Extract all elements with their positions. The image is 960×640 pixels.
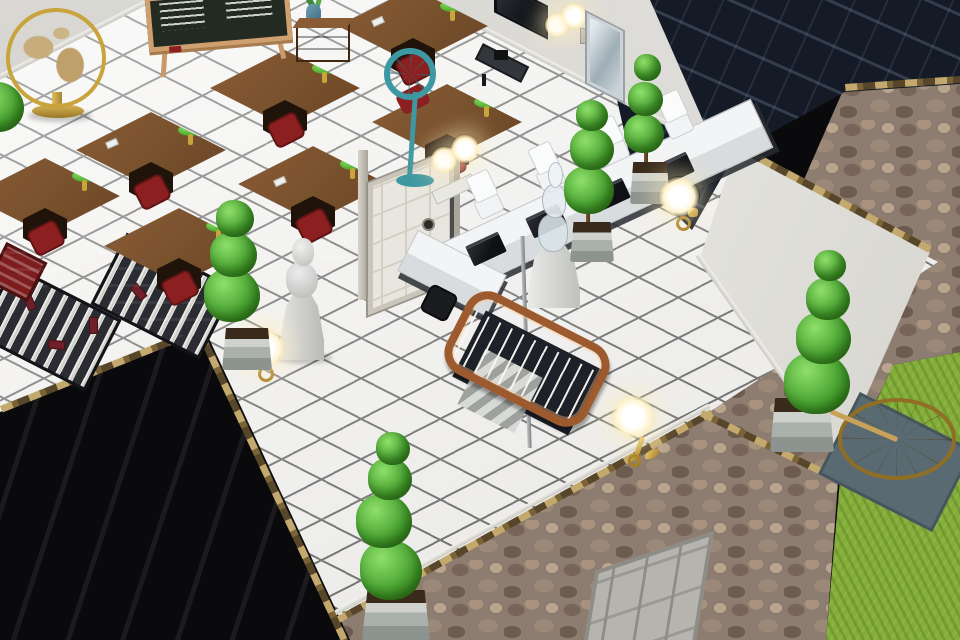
topiary-ball <box>634 54 661 81</box>
topiary-ball <box>624 114 664 153</box>
topiary-ball <box>564 166 614 214</box>
topiary-pot <box>222 328 272 370</box>
topiary-ball <box>570 128 614 170</box>
statue-body <box>286 262 318 298</box>
desk-chair[interactable] <box>159 268 200 307</box>
lamp-pole <box>450 192 454 240</box>
lamp-leaf <box>643 447 661 462</box>
paper <box>273 176 287 187</box>
book <box>89 317 98 334</box>
lamp-glow <box>610 394 656 440</box>
desk-chair[interactable] <box>25 218 66 257</box>
desk-chair[interactable] <box>131 172 172 211</box>
candle-glow <box>560 2 588 30</box>
fan-base <box>396 174 434 187</box>
bench-object <box>494 50 508 60</box>
fan-cage <box>384 48 436 100</box>
topiary-ball <box>806 278 850 320</box>
topiary-tree[interactable] <box>196 192 286 372</box>
side-cabinet[interactable] <box>296 8 356 64</box>
topiary-ball <box>814 250 846 281</box>
topiary-ball <box>376 432 410 465</box>
bench-leg <box>482 74 486 86</box>
chalkboard-easel[interactable] <box>145 0 302 82</box>
paper <box>105 138 119 149</box>
paper <box>371 16 385 27</box>
topiary-ball <box>356 494 412 548</box>
topiary-ball <box>576 100 608 131</box>
chalk-text-left <box>159 0 205 31</box>
candle-glow <box>450 134 480 164</box>
book <box>48 339 66 350</box>
lamp-base <box>628 454 641 467</box>
wall-globe-lamp[interactable] <box>658 176 710 240</box>
lamp-bracket <box>676 216 691 231</box>
statue-figure <box>292 238 314 266</box>
tulip-floor-lamp[interactable] <box>608 394 678 472</box>
topiary-ball <box>628 82 663 116</box>
topiary-pot <box>570 222 614 262</box>
topiary-tree[interactable] <box>556 96 626 266</box>
chalk-tray-book <box>169 46 181 53</box>
lamp-glow <box>658 176 700 218</box>
globe-sphere <box>12 14 100 102</box>
cabinet-body <box>296 22 350 62</box>
game-scene <box>0 0 960 640</box>
cabinet-top <box>292 18 353 28</box>
topiary-ball <box>210 232 257 277</box>
topiary-ball <box>360 540 422 600</box>
topiary-ball <box>216 200 254 237</box>
desk-chair[interactable] <box>265 110 306 149</box>
stairwell[interactable] <box>446 308 612 454</box>
door-frame <box>358 150 368 300</box>
dark-bench[interactable] <box>476 48 532 90</box>
topiary-tree[interactable] <box>756 240 866 460</box>
topiary-tree[interactable] <box>346 432 446 640</box>
